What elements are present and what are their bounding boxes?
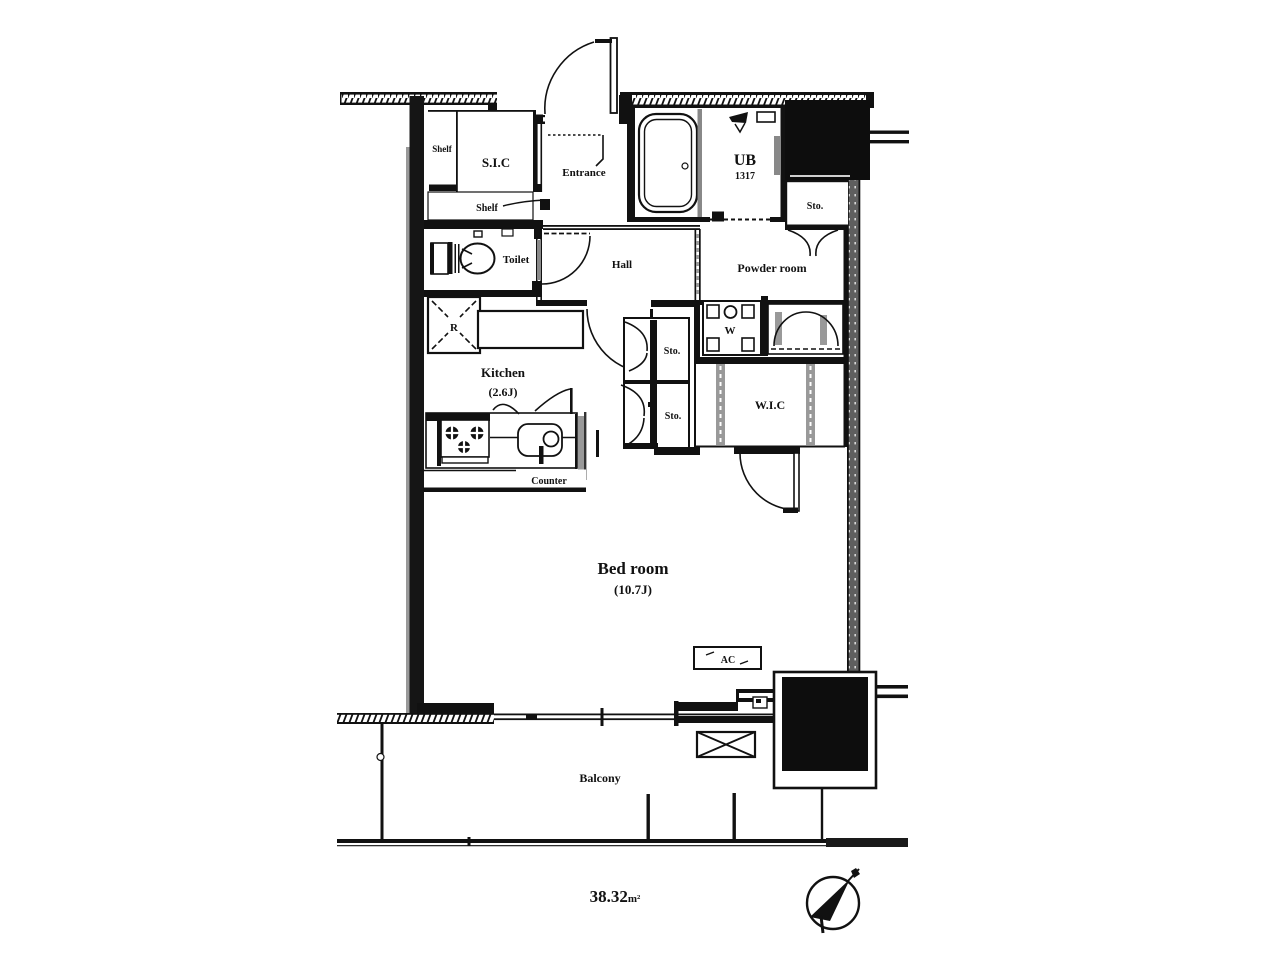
svg-text:AC: AC [721, 655, 735, 666]
svg-text:1317: 1317 [735, 171, 755, 182]
svg-text:UB: UB [734, 152, 757, 169]
svg-text:Kitchen: Kitchen [481, 365, 526, 380]
svg-text:W: W [725, 325, 736, 337]
svg-text:Toilet: Toilet [503, 254, 530, 266]
svg-text:Sto.: Sto. [665, 411, 682, 422]
svg-text:R: R [450, 322, 459, 334]
svg-text:Hall: Hall [612, 259, 632, 271]
svg-text:S.I.C: S.I.C [482, 155, 510, 170]
svg-text:Powder room: Powder room [737, 261, 806, 275]
svg-text:(2.6J): (2.6J) [489, 385, 518, 399]
svg-text:Sto.: Sto. [664, 346, 681, 357]
svg-text:Shelf: Shelf [432, 144, 453, 154]
svg-text:Balcony: Balcony [579, 771, 620, 785]
svg-text:Shelf: Shelf [476, 203, 498, 214]
svg-text:Bed room: Bed room [598, 559, 669, 578]
svg-text:Counter: Counter [531, 476, 567, 487]
svg-text:(10.7J): (10.7J) [614, 582, 652, 597]
svg-text:W.I.C: W.I.C [755, 398, 785, 412]
svg-text:Entrance: Entrance [562, 167, 606, 179]
svg-text:Sto.: Sto. [807, 201, 824, 212]
